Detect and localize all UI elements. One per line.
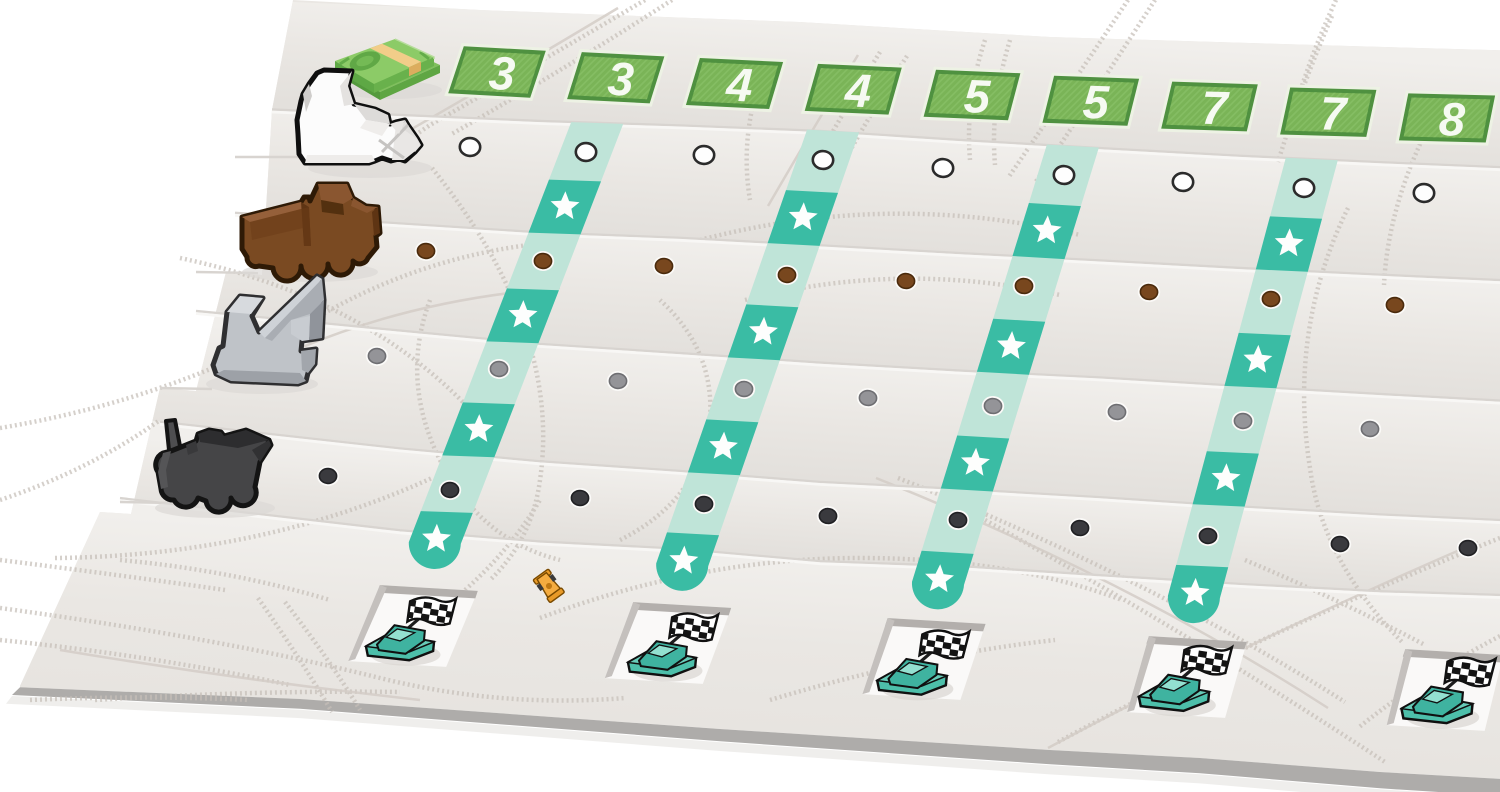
svg-text:7: 7 [1319, 86, 1348, 140]
svg-text:3: 3 [487, 46, 516, 100]
svg-text:7: 7 [1201, 81, 1231, 135]
svg-text:5: 5 [1082, 75, 1111, 129]
svg-text:4: 4 [724, 57, 754, 111]
svg-text:4: 4 [843, 63, 873, 117]
svg-text:5: 5 [963, 69, 992, 123]
svg-text:3: 3 [606, 52, 635, 106]
svg-text:8: 8 [1438, 92, 1466, 146]
